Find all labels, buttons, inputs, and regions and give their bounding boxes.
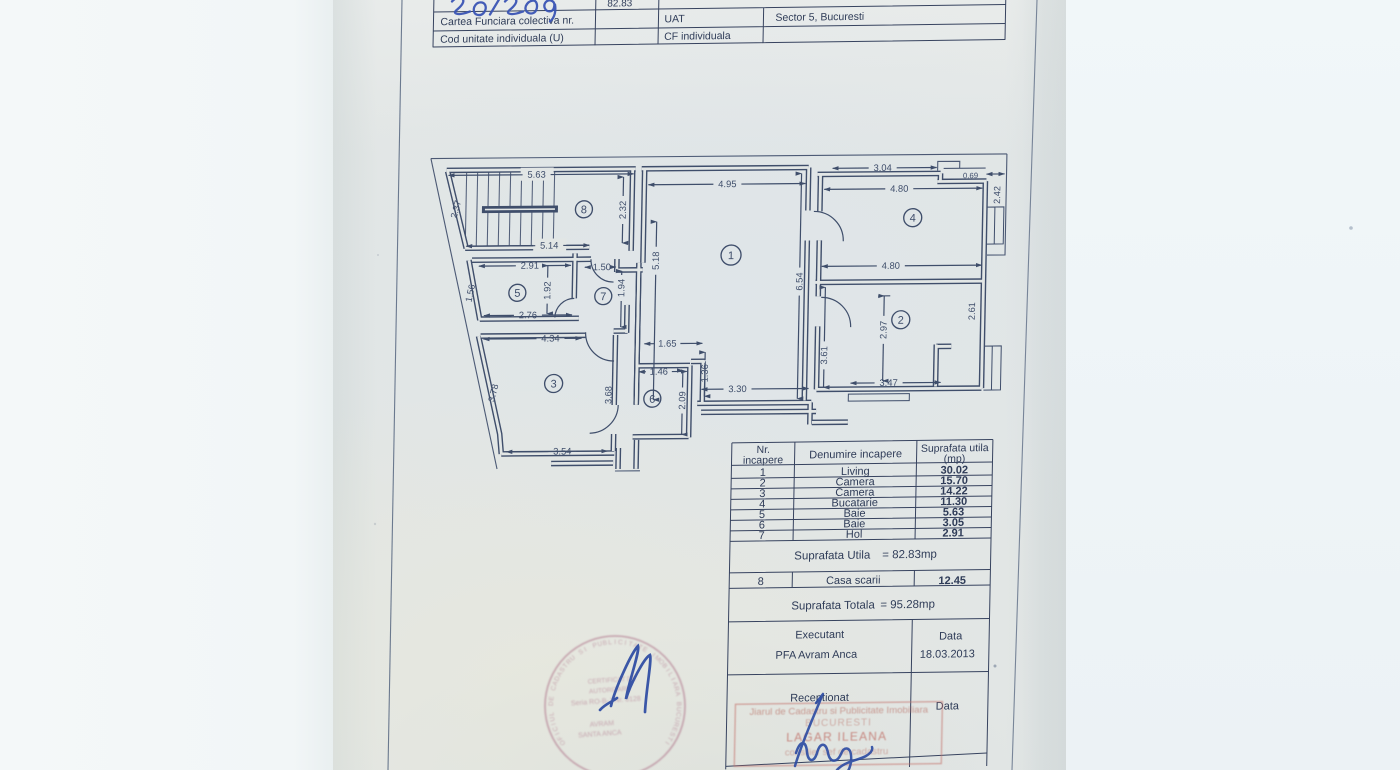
svg-text:5: 5: [514, 288, 520, 300]
svg-text:1.46: 1.46: [650, 366, 668, 377]
svg-text:8: 8: [581, 204, 587, 216]
svg-text:2.42: 2.42: [992, 186, 1002, 204]
svg-text:(mp): (mp): [944, 453, 966, 465]
svg-text:Sector 5, Bucuresti: Sector 5, Bucuresti: [775, 11, 864, 24]
svg-text:3.68: 3.68: [603, 386, 613, 404]
svg-text:1.94: 1.94: [615, 279, 626, 297]
svg-text:1.50: 1.50: [593, 261, 611, 272]
svg-text:BUCURESTI: BUCURESTI: [805, 717, 872, 729]
svg-text:incapere: incapere: [743, 454, 784, 467]
svg-text:5.14: 5.14: [540, 239, 558, 250]
svg-text:82.83: 82.83: [607, 0, 633, 10]
svg-text:5.63: 5.63: [527, 169, 545, 180]
svg-text:3.30: 3.30: [728, 383, 746, 394]
svg-text:C: C: [618, 639, 624, 646]
svg-text:I: I: [663, 740, 670, 746]
svg-text:1.92: 1.92: [541, 281, 552, 299]
svg-text:B: B: [675, 702, 682, 707]
svg-text:Hol: Hol: [846, 529, 863, 541]
svg-text:3.54: 3.54: [553, 445, 571, 456]
svg-text:3.04: 3.04: [873, 162, 891, 173]
svg-text:Suprafata Utila: Suprafata Utila: [794, 550, 871, 563]
svg-text:UAT: UAT: [664, 13, 685, 25]
svg-text:Executant: Executant: [795, 629, 844, 642]
svg-text:SANTA ANCA: SANTA ANCA: [578, 729, 622, 739]
svg-text:2.09: 2.09: [676, 391, 687, 409]
svg-text:1.36: 1.36: [699, 364, 710, 382]
svg-text:PFA Avram Anca: PFA Avram Anca: [775, 649, 858, 662]
svg-text:Casa scarii: Casa scarii: [826, 574, 881, 587]
svg-text:1: 1: [728, 250, 734, 262]
svg-text:E: E: [548, 695, 556, 701]
svg-text:I: I: [624, 640, 627, 647]
svg-text:2.61: 2.61: [967, 302, 977, 320]
svg-text:7: 7: [758, 530, 764, 542]
svg-text:2.97: 2.97: [877, 321, 888, 339]
svg-text:I: I: [583, 646, 588, 653]
svg-text:A: A: [674, 691, 682, 697]
svg-text:Data: Data: [939, 630, 963, 642]
svg-text:AVRAM: AVRAM: [589, 720, 614, 729]
svg-text:12.45: 12.45: [938, 575, 966, 587]
svg-text:4.34: 4.34: [541, 332, 559, 343]
svg-text:Cod unitate individuala (U): Cod unitate individuala (U): [440, 32, 564, 46]
svg-text:18.03.2013: 18.03.2013: [920, 648, 975, 661]
svg-text:3: 3: [550, 378, 556, 390]
svg-text:4.80: 4.80: [882, 260, 900, 271]
svg-text:2.76: 2.76: [519, 309, 537, 320]
svg-text:= 95.28mp: = 95.28mp: [880, 599, 935, 612]
svg-text:B: B: [602, 640, 607, 648]
svg-text:2.91: 2.91: [942, 527, 964, 539]
svg-text:3.61: 3.61: [818, 346, 829, 364]
svg-text:4: 4: [910, 213, 916, 225]
svg-text:AUTORIZARE: AUTORIZARE: [589, 686, 632, 696]
svg-text:CF individuala: CF individuala: [664, 30, 731, 43]
svg-text:4.95: 4.95: [718, 178, 736, 189]
svg-text:4.80: 4.80: [890, 183, 908, 194]
svg-text:I: I: [614, 639, 616, 646]
svg-text:Suprafata Totala: Suprafata Totala: [791, 599, 875, 612]
svg-text:L: L: [608, 639, 612, 646]
svg-text:2: 2: [898, 315, 904, 327]
svg-text:1.65: 1.65: [658, 338, 676, 349]
svg-text:2.32: 2.32: [617, 201, 628, 219]
svg-text:Jiarul de Cadastru si Publicit: Jiarul de Cadastru si Publicitate Imobil…: [749, 705, 928, 718]
svg-text:2.91: 2.91: [521, 260, 539, 271]
svg-text:L: L: [548, 711, 555, 716]
svg-text:Denumire incapere: Denumire incapere: [809, 448, 902, 461]
svg-text:8: 8: [758, 576, 764, 588]
svg-text:7: 7: [600, 291, 606, 303]
svg-text:6.54: 6.54: [793, 272, 804, 290]
svg-text:6: 6: [649, 394, 655, 406]
svg-text:= 82.83mp: = 82.83mp: [882, 549, 937, 562]
svg-text:5.18: 5.18: [650, 252, 661, 270]
svg-text:0.69: 0.69: [963, 171, 978, 180]
